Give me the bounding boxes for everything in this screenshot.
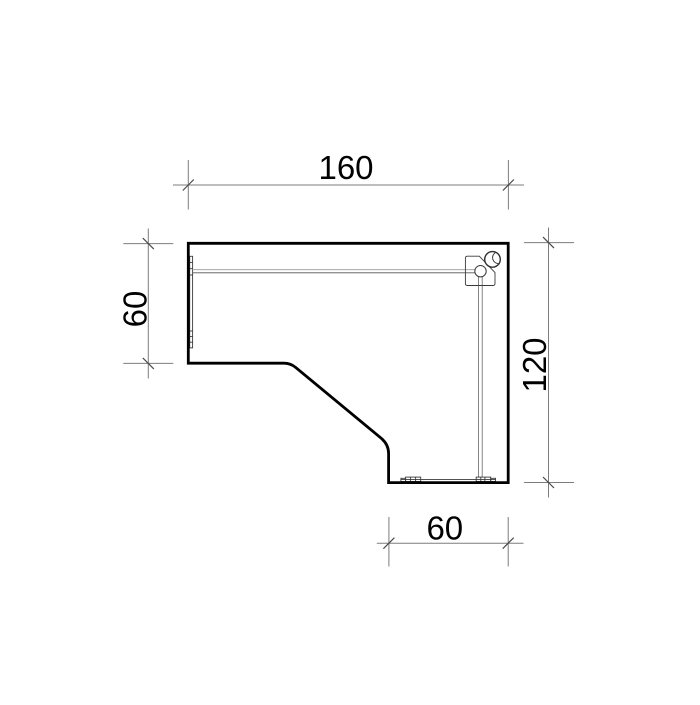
svg-text:60: 60 [117, 291, 154, 328]
svg-text:60: 60 [426, 510, 463, 547]
svg-text:160: 160 [318, 149, 373, 186]
svg-text:120: 120 [516, 337, 553, 392]
